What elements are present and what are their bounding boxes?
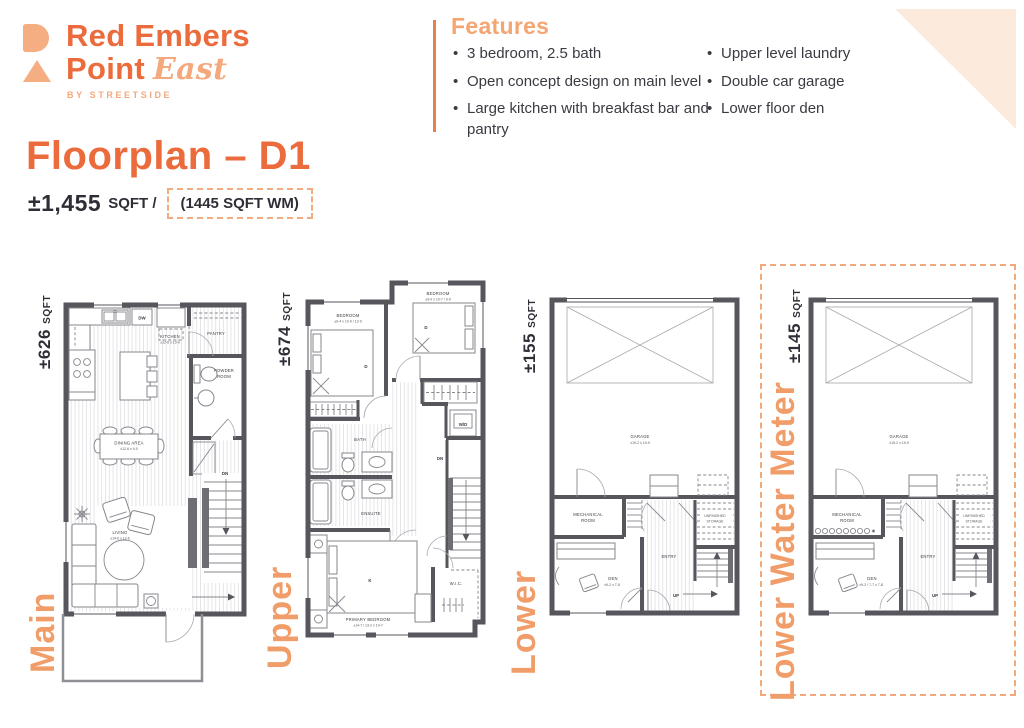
lower-plan-name: Lower <box>505 570 544 675</box>
total-area-unit: SQFT / <box>108 195 156 212</box>
dishwasher-label: DW <box>138 316 146 321</box>
toilet-fixture <box>342 453 354 472</box>
logo-mark-triangle-icon <box>23 60 51 82</box>
upper-floorplan-drawing: BEDROOM ±9-4 x 10-0 / 12-0 D BEDROOM ±9-… <box>296 278 492 648</box>
dining-label: DINING AREA <box>114 441 143 446</box>
storage-label2: STORAGE <box>706 520 724 524</box>
garage-dim: ±19-2 x 19-9 <box>889 441 909 445</box>
nightstand <box>310 535 327 553</box>
range-fixture <box>69 350 95 400</box>
down-label: DN <box>222 471 228 476</box>
dining-dim: ±12-6 x 9-0 <box>120 447 138 451</box>
mechanical-room-label2: ROOM <box>840 518 854 523</box>
bed-double <box>311 330 373 396</box>
desk <box>816 543 874 559</box>
features-title: Features <box>451 13 549 40</box>
den-label: DEN <box>867 576 876 581</box>
toilet-fixture <box>342 481 354 500</box>
bed-size-label: D <box>424 325 427 330</box>
garage-label: GARAGE <box>630 434 649 439</box>
nightstand <box>310 610 327 628</box>
features-column-2: Upper level laundry Double car garage Lo… <box>706 44 968 127</box>
brand-byline: BY STREETSIDE <box>67 90 172 100</box>
down-label: DN <box>437 456 443 461</box>
sink-fixture <box>362 480 392 498</box>
garage-dim: ±19-2 x 19-9 <box>630 441 650 445</box>
bedroom-dim: ±9-0 x 10-7 / 9-9 <box>425 298 451 302</box>
up-label: UP <box>932 593 938 598</box>
kitchen-dim: ±12-6 x 10-0 <box>160 341 180 345</box>
bedroom-dim: ±9-4 x 10-0 / 12-0 <box>334 320 362 324</box>
powder-room-label2: ROOM <box>217 374 231 379</box>
kitchen-island <box>120 352 157 400</box>
bed-king <box>327 541 417 613</box>
brand-name-top: Red Embers <box>66 18 250 54</box>
bathtub <box>310 428 331 472</box>
upper-area-label: ±674SQFT <box>275 292 295 366</box>
lower-wm-plan-name: Lower Water Meter <box>764 381 803 701</box>
feature-item: Large kitchen with breakfast bar and pan… <box>452 99 714 140</box>
primary-bedroom-dim: ±14-7 / 13-2 x 10-7 <box>353 624 383 628</box>
main-area-label: ±626SQFT <box>35 295 55 369</box>
features-column-1: 3 bedroom, 2.5 bath Open concept design … <box>452 44 714 148</box>
bathtub <box>310 480 331 524</box>
living-label: LIVING <box>113 530 128 535</box>
living-dim: ±14-6 x 12-6 <box>110 537 130 541</box>
kitchen-label: KITCHEN <box>160 334 180 339</box>
upper-plan-name: Upper <box>261 566 300 669</box>
feature-item: Upper level laundry <box>706 44 968 65</box>
brand-name-bottom: PointEast <box>66 51 227 87</box>
logo-mark-d-icon <box>23 24 49 52</box>
den-label: DEN <box>608 576 617 581</box>
feature-item: Double car garage <box>706 72 968 93</box>
garage-label: GARAGE <box>889 434 908 439</box>
water-meter-area-badge: (1445 SQFT WM) <box>167 188 313 219</box>
feature-item: 3 bedroom, 2.5 bath <box>452 44 714 65</box>
mechanical-room-label: MECHANICAL <box>573 512 603 517</box>
primary-bedroom-label: PRIMARY BEDROOM <box>346 617 391 622</box>
entry-label: ENTRY <box>661 554 676 559</box>
powder-room-label: POWDER <box>214 368 234 373</box>
den-dim: ±9-2 x 7-8 <box>604 583 620 587</box>
feature-item: Lower floor den <box>706 99 968 120</box>
den-dim: ±9-2 / 7-7 x 7-8 <box>859 583 883 587</box>
entry-label: ENTRY <box>920 554 935 559</box>
bed-size-label: D <box>364 364 367 369</box>
storage-label: UNFINISHED <box>704 514 726 518</box>
bedroom-label: BEDROOM <box>426 291 449 296</box>
entry-landing <box>909 475 937 497</box>
lower-wm-floorplan-drawing: GARAGE ±19-2 x 19-9 MECHANICAL ROOM DEN … <box>802 291 1002 626</box>
storage-label: UNFINISHED <box>963 514 985 518</box>
side-table <box>144 594 158 608</box>
wic-label: W.I.C. <box>450 581 463 586</box>
pantry-label: PANTRY <box>207 331 225 336</box>
features-divider <box>433 20 436 132</box>
bedroom-label: BEDROOM <box>336 313 359 318</box>
up-label: UP <box>673 593 679 598</box>
bed-double <box>413 303 475 353</box>
deck-outline <box>63 614 202 681</box>
storage-label2: STORAGE <box>965 520 983 524</box>
total-area-line: ±1,455 SQFT / (1445 SQFT WM) <box>28 188 313 219</box>
ensuite-label: ENSUITE <box>361 511 381 516</box>
sink-fixture <box>362 452 392 472</box>
lower-area-label: ±155SQFT <box>520 299 540 373</box>
washer-dryer-label: W/D <box>459 422 468 427</box>
total-area-value: ±1,455 <box>28 190 101 217</box>
mechanical-room-label2: ROOM <box>581 518 595 523</box>
bath-label: BATH <box>354 437 366 442</box>
main-floorplan-drawing: KITCHEN ±12-6 x 10-0 DW PANTRY POWDER RO… <box>58 292 250 692</box>
brand-east: East <box>153 52 227 87</box>
floorplan-brochure: Red Embers PointEast BY STREETSIDE Floor… <box>0 0 1024 728</box>
brand-point: Point <box>66 51 145 86</box>
feature-item: Open concept design on main level <box>452 72 714 93</box>
desk <box>557 543 615 559</box>
page-title: Floorplan – D1 <box>26 134 311 179</box>
mechanical-room-label: MECHANICAL <box>832 512 862 517</box>
entry-landing <box>650 475 678 497</box>
lower-floorplan-drawing: GARAGE ±19-2 x 19-9 MECHANICAL ROOM DEN … <box>543 291 743 626</box>
